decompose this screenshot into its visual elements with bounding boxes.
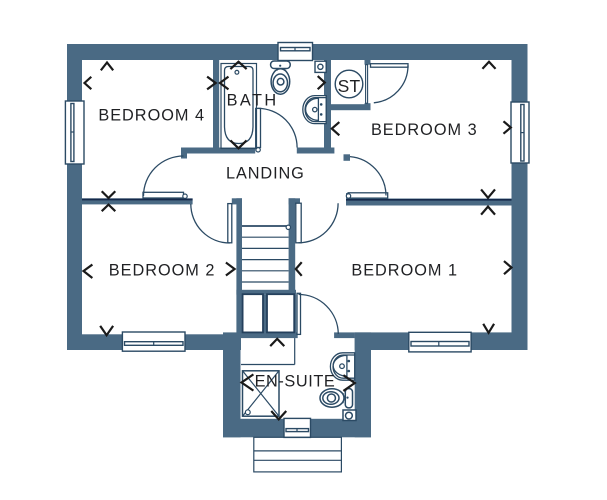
svg-text:BEDROOM 4: BEDROOM 4 xyxy=(98,107,205,125)
svg-text:LANDING: LANDING xyxy=(226,165,305,183)
svg-text:ST: ST xyxy=(338,76,361,96)
svg-text:EN-SUITE: EN-SUITE xyxy=(255,372,336,390)
svg-text:BEDROOM 2: BEDROOM 2 xyxy=(109,261,216,279)
svg-text:BEDROOM 1: BEDROOM 1 xyxy=(351,261,458,279)
svg-text:BATH: BATH xyxy=(227,91,279,109)
svg-text:BEDROOM 3: BEDROOM 3 xyxy=(371,121,478,139)
